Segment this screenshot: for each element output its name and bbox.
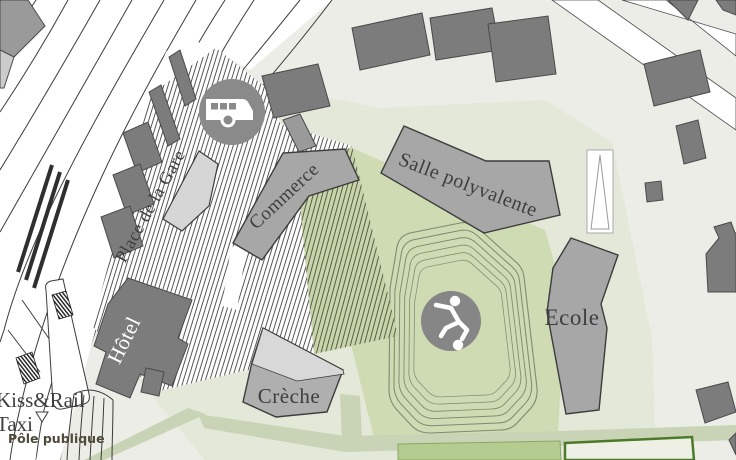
- building: [488, 16, 556, 82]
- label-pole-publique: Pôle publique: [8, 431, 105, 446]
- soccer-marker[interactable]: [421, 291, 481, 351]
- building: [645, 181, 663, 202]
- label-creche: Crèche: [258, 384, 320, 408]
- label-kiss-rail: Kiss&Rail: [0, 388, 85, 412]
- tower-symbol: [587, 150, 613, 233]
- footpath-stub: [340, 394, 362, 440]
- green-field-rect: [398, 441, 561, 460]
- bus-marker[interactable]: [199, 79, 265, 145]
- site-plan-map: Place de la Gare Commerce Salle polyvale…: [0, 0, 736, 460]
- label-ecole: Ecole: [545, 305, 600, 330]
